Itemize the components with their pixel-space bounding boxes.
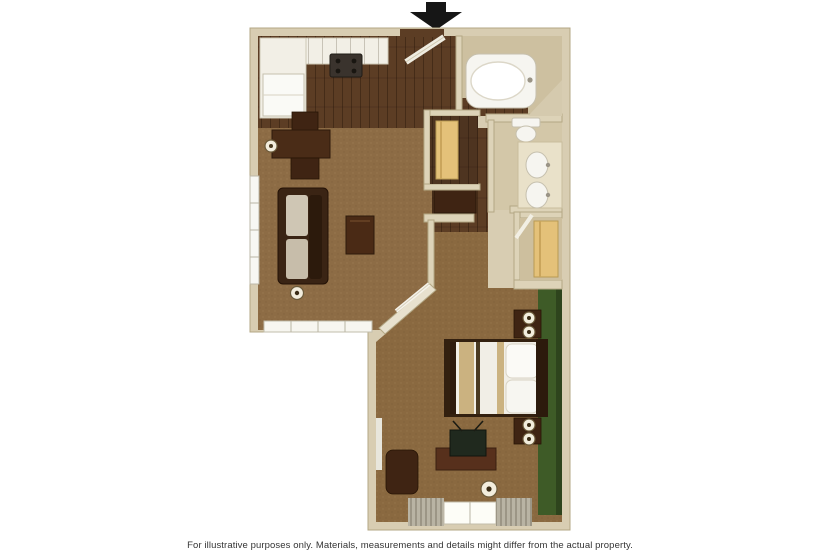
bedroom-floor-lamp <box>481 481 497 497</box>
tub-faucet <box>527 77 532 82</box>
sofa <box>278 188 328 284</box>
nightstand-bottom <box>514 418 541 445</box>
stove <box>330 54 362 77</box>
nightstand-top <box>514 310 541 338</box>
hall-closet <box>424 110 480 190</box>
dining-chair <box>292 112 318 131</box>
closet-shelf <box>534 221 558 277</box>
floor-lamp <box>291 287 304 300</box>
mirror <box>376 418 382 470</box>
pillow <box>506 344 538 378</box>
bed <box>444 339 548 417</box>
dining-table <box>272 130 330 158</box>
entrance-arrow-icon <box>410 2 462 30</box>
pillow <box>506 380 538 413</box>
television <box>450 430 486 456</box>
disclaimer-caption: For illustrative purposes only. Material… <box>0 540 820 551</box>
floor-plan-graphic <box>0 0 820 560</box>
side-window <box>250 176 259 284</box>
bedroom-window <box>408 498 532 526</box>
floor-plan-page: For illustrative purposes only. Material… <box>0 0 820 560</box>
front-window <box>264 321 372 332</box>
wardrobe-closet <box>514 212 562 289</box>
armchair <box>386 450 418 494</box>
headboard <box>536 339 548 417</box>
closet-shelf <box>436 121 458 179</box>
vanity-double-sink <box>518 142 562 208</box>
dining-chair <box>291 158 319 179</box>
